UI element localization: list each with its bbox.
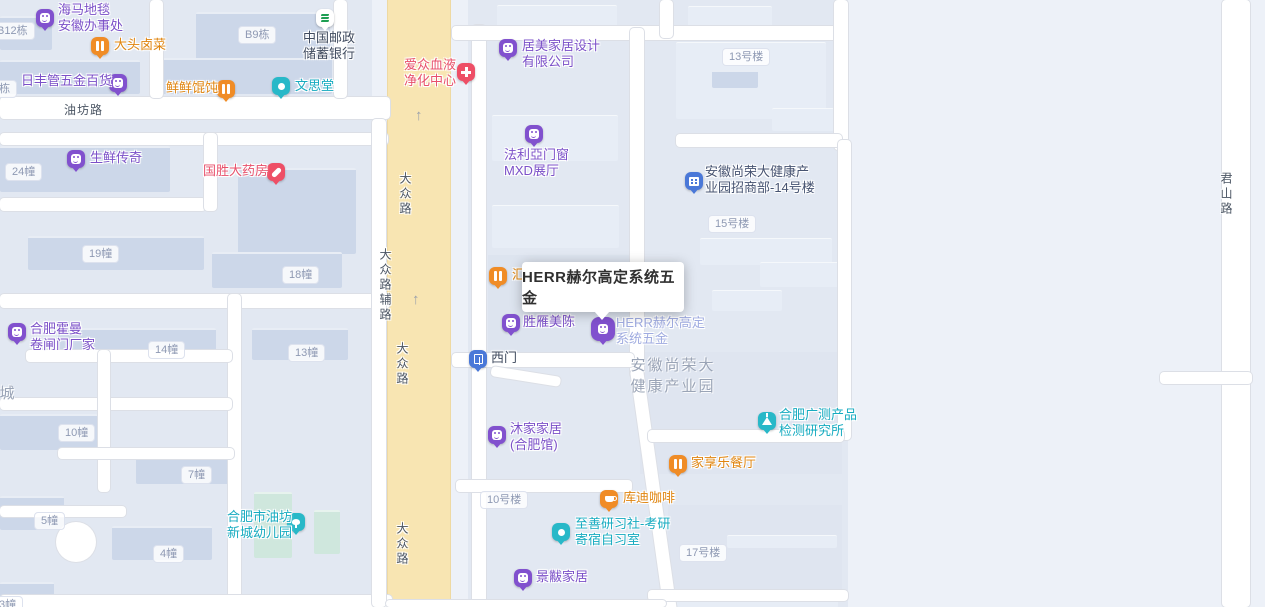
guosheng-pharmacy-label: 国胜大药房: [203, 163, 268, 179]
youfang-kindergarten-label: 合肥市油坊新城幼儿园: [227, 509, 292, 541]
dot-icon: [558, 529, 565, 536]
shengxian-chuanqi-pin[interactable]: [67, 150, 85, 168]
shopping-bag-icon: [529, 129, 539, 139]
building-footprint: [238, 168, 356, 254]
building-number-label: 7幢: [181, 466, 212, 484]
shengyan-meichen-label: 胜雁美陈: [523, 314, 575, 330]
herr-hardware-selected-label: HERR赫尔高定系统五金: [616, 315, 705, 347]
building-number-label: B12栋: [0, 22, 35, 40]
jumei-home-design-label: 居美家居设计有限公司: [522, 38, 600, 70]
road-direction-arrow-icon: ↑: [412, 291, 420, 308]
jingfu-home-label: 景黻家居: [536, 569, 588, 585]
wensitang-pin[interactable]: [272, 77, 290, 95]
road-label: 大众路: [394, 522, 411, 567]
road-label: 君山路: [1218, 172, 1235, 217]
building-number-label: 24幢: [5, 163, 42, 181]
building-footprint: [648, 600, 838, 607]
road-direction-arrow-icon: ↑: [415, 107, 423, 124]
fork-knife-icon: [674, 459, 677, 469]
building-number-label: 10号楼: [480, 491, 528, 509]
road-segment: [452, 26, 848, 40]
shopping-bag-icon: [503, 43, 513, 53]
building-number-label: 4幢: [153, 545, 184, 563]
aizhong-blood-purification-center-pin[interactable]: [457, 63, 475, 81]
aizhong-blood-purification-center-label: 爱众血液净化中心: [404, 57, 456, 89]
selected-poi-tooltip[interactable]: HERR赫尔高定系统五金: [522, 262, 684, 312]
road-segment: [1160, 372, 1252, 384]
mujia-home-pin[interactable]: [488, 426, 506, 444]
road-segment: [0, 133, 388, 145]
zhishan-study-room-label: 至善研习社-考研寄宿自习室: [575, 516, 670, 548]
building-footprint: [760, 262, 846, 287]
jingfu-home-pin[interactable]: [514, 569, 532, 587]
road-segment: [98, 350, 110, 492]
zhishan-study-room-pin[interactable]: [552, 523, 570, 541]
building-number-label: 18幢: [282, 266, 319, 284]
building-footprint: [772, 108, 834, 131]
building-footprint: [497, 5, 617, 28]
shopping-bag-icon: [113, 78, 123, 88]
road-segment: [372, 119, 386, 607]
building-footprint: [712, 70, 758, 88]
haima-carpet-label: 海马地毯安徽办事处: [58, 2, 123, 34]
road-segment: [386, 600, 666, 607]
building-number-label: B9栋: [238, 26, 276, 44]
medical-cross-icon: [461, 67, 471, 77]
fork-knife-icon: [494, 271, 497, 281]
shangrongda-investment-dept-label: 安徽尚荣大健康产业园招商部-14号楼: [705, 164, 815, 196]
faliya-doors-windows-pin[interactable]: [525, 125, 543, 143]
faliya-doors-windows-label: 法利亞门窗MXD展厅: [504, 147, 569, 179]
flask-icon: [762, 417, 772, 425]
gate-icon: [474, 354, 483, 364]
road-segment: [838, 140, 851, 440]
datou-braised-food-label: 大头卤菜: [114, 37, 166, 53]
road-segment: [1222, 0, 1250, 607]
xianxian-wonton-pin[interactable]: [217, 80, 235, 98]
road-label: 油坊路: [64, 101, 103, 118]
building-number-label: 19幢: [82, 245, 119, 263]
guangce-testing-institute-pin[interactable]: [758, 412, 776, 430]
china-post-savings-bank-pin[interactable]: [316, 9, 334, 27]
jumei-home-design-pin[interactable]: [499, 39, 517, 57]
xianxian-wonton-label: 鲜鲜馄饨: [166, 80, 218, 96]
building-number-label: 5幢: [34, 512, 65, 530]
building-number-label: 10幢: [58, 424, 95, 442]
building-footprint: [688, 6, 772, 27]
datou-braised-food-pin[interactable]: [91, 37, 109, 55]
road-segment: [834, 0, 848, 150]
shopping-cart-icon: [71, 154, 81, 164]
road-segment: [472, 25, 486, 607]
mujia-home-label: 沐家家居(合肥馆): [510, 421, 562, 453]
guangce-testing-institute-label: 合肥广测产品检测研究所: [779, 407, 857, 439]
area-label: 城: [0, 382, 20, 403]
tree-icon: [292, 519, 300, 525]
building-number-label: 15号楼: [708, 215, 756, 233]
hefei-huoman-rolling-doors-pin[interactable]: [8, 323, 26, 341]
guosheng-pharmacy-pin[interactable]: [267, 163, 285, 181]
shopping-bag-icon: [492, 430, 502, 440]
road-label: 大众路: [394, 342, 411, 387]
building-footprint: [727, 535, 837, 548]
postal-bank-icon: [320, 13, 330, 23]
road-segment: [0, 97, 390, 119]
fork-knife-icon: [222, 84, 225, 94]
shopping-bag-icon: [506, 318, 516, 328]
shengxian-chuanqi-label: 生鲜传奇: [90, 150, 142, 166]
west-gate-label: 西门: [491, 350, 517, 366]
haima-carpet-pin[interactable]: [36, 9, 54, 27]
road-segment: [660, 0, 673, 38]
west-gate-pin[interactable]: [469, 350, 487, 368]
map-canvas[interactable]: HERR赫尔高定系统五金 ↑↑油坊路大众路大众路大众路大众路辅路君山路B12栋7…: [0, 0, 1265, 607]
road-segment: [0, 198, 206, 211]
building-number-label: 13幢: [288, 344, 325, 362]
road-segment: [58, 448, 234, 459]
hefei-huoman-rolling-doors-label: 合肥霍曼卷闸门厂家: [30, 321, 95, 353]
shengyan-meichen-pin[interactable]: [502, 314, 520, 332]
china-post-savings-bank-label: 中国邮政储蓄银行: [303, 30, 355, 62]
rifeng-hardware-store-label: 日丰管五金百货: [21, 73, 112, 89]
road-segment: [676, 134, 842, 147]
road-label: 大众路: [397, 172, 414, 217]
dot-icon: [278, 83, 285, 90]
road-segment: [648, 590, 848, 601]
wensitang-label: 文思堂: [295, 78, 334, 94]
shopping-bag-icon: [518, 573, 528, 583]
road-segment: [0, 595, 392, 607]
kudi-coffee-label: 库迪咖啡: [623, 490, 675, 506]
road-segment: [0, 398, 232, 410]
building-number-label: 7栋: [0, 80, 17, 98]
shangrongda-investment-dept-pin[interactable]: [685, 172, 703, 190]
hui-restaurant-partial-pin[interactable]: [489, 267, 507, 285]
building-footprint: [712, 290, 782, 311]
building-footprint: [492, 205, 619, 248]
capsule-icon: [270, 166, 281, 177]
building-number-label: 17号楼: [679, 544, 727, 562]
building-number-label: 13号楼: [722, 48, 770, 66]
building-footprint: [212, 252, 342, 288]
road-segment: [0, 294, 390, 308]
fork-knife-icon: [96, 41, 99, 51]
shopping-bag-icon: [40, 13, 50, 23]
building-footprint: [700, 238, 832, 265]
kudi-coffee-pin[interactable]: [600, 490, 618, 508]
shopping-bag-icon: [12, 327, 22, 337]
jiaxiangle-restaurant-label: 家享乐餐厅: [691, 455, 756, 471]
coffee-cup-icon: [605, 496, 614, 502]
building-number-label: 14幢: [148, 341, 185, 359]
jiaxiangle-restaurant-pin[interactable]: [669, 455, 687, 473]
building-footprint: [314, 510, 340, 554]
building-number-label: 3幢: [0, 596, 23, 607]
road-label: 大众路辅路: [377, 248, 394, 323]
area-label: 安徽尚荣大健康产业园: [618, 354, 728, 396]
building-icon: [689, 177, 699, 186]
